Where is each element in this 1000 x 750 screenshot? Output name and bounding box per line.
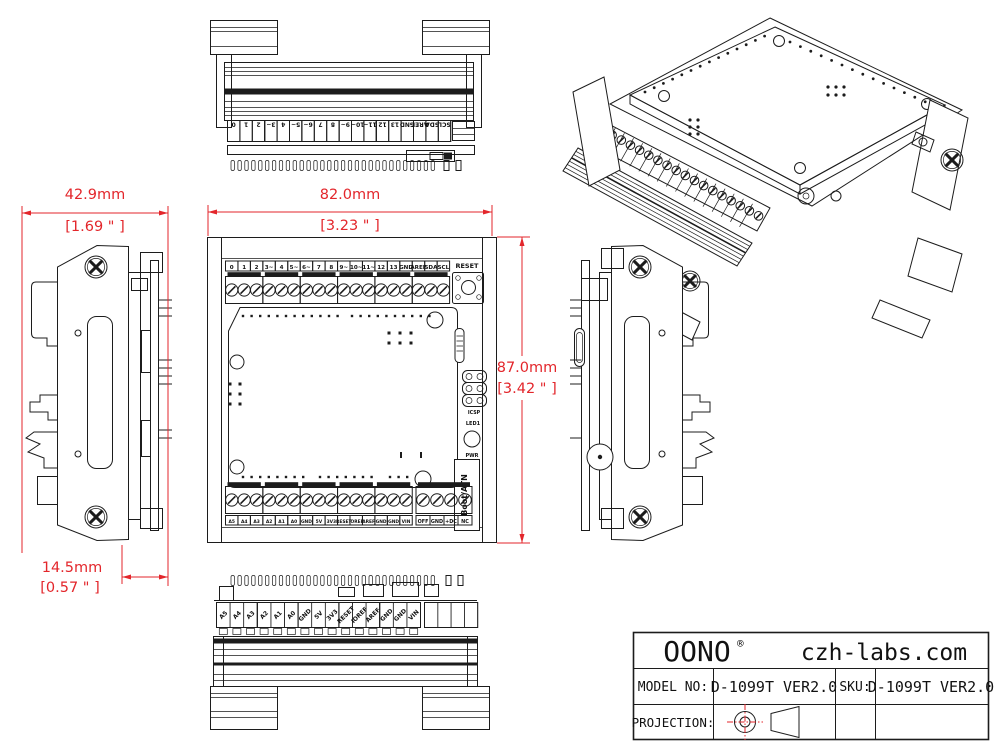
pad-dot [377, 315, 379, 317]
header-pin [300, 161, 303, 171]
terminal-label: A3 [245, 610, 256, 621]
terminal-label: 7 [317, 265, 321, 271]
terminal-label: A5 [218, 610, 229, 621]
terminal-label: A2 [266, 519, 272, 525]
din-hook-top [32, 282, 58, 346]
pad-dot [250, 476, 252, 478]
terminal-label: A0 [291, 519, 297, 525]
pad-dot [842, 93, 845, 96]
pad-dot [745, 43, 748, 46]
dimension-front-height: 87.0mm [3.42 " ] [497, 237, 558, 543]
pad-dot [345, 476, 347, 478]
pwr-led [464, 431, 480, 447]
bottom-right-plate [423, 687, 490, 730]
pad-dot [696, 125, 699, 128]
header-pin [266, 576, 269, 586]
screw-slot [390, 496, 397, 503]
terminal-label-cell [464, 603, 477, 628]
pad-dot [410, 332, 413, 335]
terminal-label: 5~ [290, 265, 299, 271]
header-pin [259, 161, 262, 171]
terminal-label: 11~ [362, 265, 375, 271]
din-hook-top [683, 282, 709, 346]
pad-dot [872, 77, 875, 80]
website: czh-labs.com [801, 640, 967, 666]
right-side-view [570, 246, 714, 541]
screw-slot [265, 496, 272, 503]
pad-dot [690, 69, 693, 72]
rail-dark-band [214, 639, 478, 644]
pad-dot [834, 93, 837, 96]
pad-dot [696, 132, 699, 135]
component-block [425, 585, 439, 597]
terminal-label: AREF [362, 519, 375, 525]
iso-led [831, 191, 841, 201]
header-pin [369, 161, 372, 171]
screw-slot [253, 496, 260, 503]
terminal-clamp-bar [302, 272, 335, 276]
drawing-canvas: 0123~45~6~789~10~11~1213GNDAREFSDASCL [0, 0, 1000, 750]
header-pin [404, 576, 407, 586]
pad-dot [411, 315, 413, 317]
header-pin [410, 576, 413, 586]
button-corner-screw [456, 295, 461, 300]
header-pin [266, 161, 269, 171]
front-bottom-terminal-row: A5A4A3A2A1A0GND5V3V3RESETIOREFAREFGNDGND… [226, 482, 473, 525]
screw-slot [315, 286, 322, 293]
pad-dot [754, 39, 757, 42]
pad-dot [399, 342, 402, 345]
header-pin [348, 576, 351, 586]
header-pin [383, 161, 386, 171]
button-corner-screw [456, 276, 461, 281]
terminal-clamp-bar [340, 482, 373, 486]
screw-slot [278, 286, 285, 293]
terminal-label: A4 [232, 610, 243, 621]
terminal-foot [383, 629, 391, 635]
pad-dot [688, 132, 691, 135]
pad-dot [336, 315, 338, 317]
pad-dot [362, 476, 364, 478]
pad-dot [268, 476, 270, 478]
screw-slot [377, 496, 384, 503]
rail-dark-band [225, 89, 474, 95]
pcb-mark [400, 452, 402, 458]
terminal-label: +DC [445, 519, 457, 525]
header-pin [279, 576, 282, 586]
pad-dot [851, 68, 854, 71]
dim-arrow [208, 210, 217, 215]
pad-dot [826, 93, 829, 96]
screw-slot [228, 496, 235, 503]
button-corner-screw [477, 295, 482, 300]
pwr-label: PWR [465, 453, 478, 459]
dim-arrow [483, 210, 492, 215]
pad-dot [913, 96, 916, 99]
wide-pin [456, 161, 461, 171]
pad-dot [351, 315, 353, 317]
dim-arrow [520, 237, 525, 246]
dim-inch: [3.42 " ] [497, 381, 557, 397]
dimension-front-width: 82.0mm [3.23 " ] [208, 187, 492, 236]
plate-lines [423, 28, 490, 47]
terminal-label: SCL [438, 121, 451, 128]
terminal-foot [410, 629, 418, 635]
header-pin [293, 161, 296, 171]
component-block [339, 588, 355, 597]
screw-slot [340, 496, 347, 503]
screw-slot [303, 286, 310, 293]
header-pin [328, 161, 331, 171]
terminal-foot [301, 629, 309, 635]
pad-dot [688, 125, 691, 128]
left-side-view [26, 246, 172, 541]
pad-dot [688, 118, 691, 121]
header-pins [570, 300, 582, 438]
component-block [142, 331, 151, 373]
header-pin [238, 161, 241, 171]
terminal-label: GND [431, 519, 443, 525]
terminal-label: 1 [244, 121, 248, 128]
header-pin [245, 576, 248, 586]
screw-slot [440, 286, 447, 293]
bottom-terminal-row: A5A4A3A2A1A0GND5V3V3RESETIOREFAREFGNDGND… [217, 603, 478, 635]
terminal-label: 5V [313, 610, 324, 621]
terminal-clamp-bar [228, 482, 261, 486]
screw-slot [228, 286, 235, 293]
pad-dot [328, 315, 330, 317]
screw-slot [253, 286, 260, 293]
header-pin [286, 161, 289, 171]
dim-arrow [159, 211, 168, 216]
icsp-pin [466, 374, 472, 380]
pad-dot [259, 476, 261, 478]
pad-dot [259, 315, 261, 317]
terminal-label: 7 [318, 121, 322, 128]
header-pin [252, 576, 255, 586]
pad-dot [239, 393, 242, 396]
header-pin [341, 161, 344, 171]
terminal-label: A0 [286, 610, 297, 621]
terminal-clamp-bar [377, 482, 410, 486]
pad-dot [388, 332, 391, 335]
din-spring-clip [683, 432, 715, 468]
pad-dot [319, 315, 321, 317]
dim-arrow [159, 575, 168, 580]
header-pin [231, 161, 234, 171]
terminal-label: GND [376, 519, 387, 525]
terminal-foot [396, 629, 404, 635]
pad-dot [708, 61, 711, 64]
header-pin [238, 576, 241, 586]
pcb-mark [420, 452, 422, 458]
front-top-terminal-row: 0123~45~6~789~10~11~1213GNDAREFSDASCL [226, 261, 450, 304]
terminal-label: 9~ [339, 265, 348, 271]
terminal-label: SCL [438, 265, 450, 271]
terminal-foot [342, 629, 350, 635]
pad-dot [903, 91, 906, 94]
screw-slot [433, 496, 441, 504]
header-pin [397, 576, 400, 586]
screw-slot [365, 286, 372, 293]
terminal-label-cell [451, 603, 464, 628]
plate-lines [211, 28, 278, 47]
pad-dot [311, 315, 313, 317]
header-pins [159, 300, 173, 438]
pad-dot [285, 315, 287, 317]
terminal-label: 1 [242, 265, 246, 271]
pad-dot [680, 73, 683, 76]
screw-slot [427, 286, 434, 293]
pad-dot [736, 48, 739, 51]
sku-value: D-1099T VER2.0 [868, 678, 994, 696]
dim-mm: 87.0mm [497, 360, 558, 376]
header-pin [293, 576, 296, 586]
drawing-sheet: 0123~45~6~789~10~11~1213GNDAREFSDASCL [0, 0, 1000, 750]
plate-lines [211, 694, 278, 718]
terminal-label: 13 [390, 265, 398, 271]
pad-dot [406, 476, 408, 478]
terminal-label: A5 [228, 519, 234, 525]
terminal-label: A4 [241, 519, 247, 525]
screw-slot [315, 496, 322, 503]
pad-dot [717, 56, 720, 59]
terminal-label: 2 [256, 121, 260, 128]
terminal-label: 3~ [266, 121, 275, 128]
power-jack-side [582, 279, 608, 301]
terminal-clamp-bar [265, 272, 298, 276]
header-pin [300, 576, 303, 586]
terminal-foot [247, 629, 255, 635]
din-hook-bottom [38, 477, 58, 505]
usb-connector [455, 329, 464, 363]
pad-dot [420, 315, 422, 317]
pad-dot [653, 86, 656, 89]
terminal-label: SDA [425, 121, 439, 128]
dim-mm: 42.9mm [65, 187, 126, 203]
screw-slot [447, 496, 455, 504]
dim-arrow [520, 534, 525, 543]
left-rail-channel [208, 238, 222, 543]
pad-dot [302, 315, 304, 317]
pad-dot [826, 85, 829, 88]
wide-pin [446, 576, 451, 586]
reset-label: RESET [455, 262, 479, 270]
connector-lines [453, 129, 475, 135]
pad-dot [285, 476, 287, 478]
component-block [364, 585, 384, 597]
pad-dot [644, 91, 647, 94]
terminal-label: 8 [331, 121, 335, 128]
pad-dot [336, 476, 338, 478]
reset-button-cap[interactable] [462, 281, 476, 295]
pad-dot [841, 64, 844, 67]
terminal-label: 10~ [350, 265, 363, 271]
dim-mm: 14.5mm [42, 560, 103, 576]
pad-dot [293, 476, 295, 478]
iso-clip-channel [908, 238, 962, 292]
sku-label: SKU: [839, 680, 870, 695]
terminal-label: VIN [407, 609, 420, 622]
terminal-clamp-bar [377, 272, 410, 276]
header-pin [259, 576, 262, 586]
pcb-edge [151, 261, 159, 531]
screw-slot [365, 496, 372, 503]
title-block: OONO ® czh-labs.com MODEL NO: D-1099T VE… [632, 633, 995, 741]
pad-dot [861, 73, 864, 76]
terminal-label: A2 [259, 610, 270, 621]
terminal-label: 0 [232, 121, 236, 128]
terminal-label: A1 [272, 610, 283, 621]
bottom-left-plate [211, 687, 278, 730]
screw-slot [419, 496, 427, 504]
header-pin [355, 576, 358, 586]
terminal-label: 2 [255, 265, 259, 271]
terminal-label: 3~ [265, 265, 274, 271]
header-pin [335, 576, 338, 586]
component-block [142, 421, 151, 457]
dim-inch: [3.23 " ] [320, 218, 380, 234]
terminal-clamp-bar [228, 272, 261, 276]
screw-slot [241, 286, 248, 293]
usb-connector-side [575, 329, 585, 367]
pad-dot [229, 383, 232, 386]
header-pin [272, 161, 275, 171]
header-pin [314, 576, 317, 586]
terminal-foot [274, 629, 282, 635]
icsp-pins [466, 374, 483, 404]
pad-dot [410, 342, 413, 345]
header-pin [335, 161, 338, 171]
top-right-plate [423, 21, 490, 55]
top-connector [453, 122, 475, 141]
pad-dot [276, 476, 278, 478]
icsp-pin [466, 386, 472, 392]
header-pin [348, 161, 351, 171]
projection-label: PROJECTION: [632, 715, 715, 730]
bracket-plate [58, 246, 129, 541]
pad-dot [327, 476, 329, 478]
din-tab-middle [30, 395, 58, 420]
terminal-label: GND [388, 519, 399, 525]
stack-bottom-flange [141, 509, 163, 529]
terminal-label: 9~ [341, 121, 350, 128]
screw-slot [278, 496, 285, 503]
terminal-label: 12 [378, 121, 386, 128]
pad-dot [242, 315, 244, 317]
rail-end-cap [468, 637, 478, 687]
terminal-clamp-bar [418, 482, 470, 486]
screw-slot [303, 496, 310, 503]
pad-dot [696, 118, 699, 121]
switch-body [430, 153, 443, 160]
terminal-label: 11~ [363, 121, 376, 128]
rail-body [214, 637, 478, 687]
brand-name: OONO [663, 635, 730, 668]
screw-slot [290, 286, 297, 293]
terminal-label: GND [297, 608, 313, 624]
screw-slot [265, 286, 272, 293]
pad-dot [834, 85, 837, 88]
header-pin [231, 576, 234, 586]
terminal-label: 6~ [302, 265, 311, 271]
pad-dot [359, 315, 361, 317]
icsp-label: ICSP [468, 410, 481, 416]
terminal-clamp-bar [265, 482, 298, 486]
top-left-plate [211, 21, 278, 55]
model-label: MODEL NO: [638, 680, 708, 695]
screw-slot [353, 286, 360, 293]
pad-dot [671, 78, 674, 81]
pad-dot [830, 59, 833, 62]
pad-dot [239, 383, 242, 386]
pad-dot [276, 315, 278, 317]
pad-dot [242, 476, 244, 478]
terminal-label-cell [425, 603, 438, 628]
top-view: 0123~45~6~789~10~11~1213GNDAREFSDASCL [211, 21, 490, 171]
header-pin [286, 576, 289, 586]
led1-label: LED1 [466, 421, 481, 427]
terminal-foot [219, 629, 227, 635]
pad-dot [385, 315, 387, 317]
switch-knob [444, 153, 452, 160]
header-pin [390, 161, 393, 171]
pad-dot [726, 52, 729, 55]
right-rail-channel [483, 238, 497, 543]
header-pin [328, 576, 331, 586]
iso-left-end-plate [573, 77, 620, 186]
registered-mark: ® [737, 637, 744, 650]
projection-symbol [727, 704, 799, 740]
pad-dot [842, 85, 845, 88]
pad-dot [789, 41, 792, 44]
terminal-label: 10~ [351, 121, 364, 128]
arduino-pcb [229, 308, 458, 488]
din-spring-clip [26, 432, 58, 468]
header-pin [321, 161, 324, 171]
header-pin [307, 576, 310, 586]
terminal-label: VIN [402, 519, 411, 525]
din-hook-bottom [683, 477, 703, 505]
terminal-foot [315, 629, 323, 635]
icsp-pin [466, 398, 472, 404]
pad-dot [402, 315, 404, 317]
stack-top-flange [141, 253, 163, 273]
header-pin [272, 576, 275, 586]
top-terminal-row: 0123~45~6~789~10~11~1213GNDAREFSDASCL [228, 121, 451, 142]
dim-inch: [1.69 " ] [65, 219, 125, 235]
header-pin [321, 576, 324, 586]
pad-dot [893, 87, 896, 90]
terminal-foot [260, 629, 268, 635]
pad-dot [229, 403, 232, 406]
terminal-label: A1 [278, 519, 284, 525]
pad-dot [388, 342, 391, 345]
screw-slot [415, 286, 422, 293]
header-pin [314, 161, 317, 171]
terminal-label: 12 [377, 265, 385, 271]
pad-dot [394, 315, 396, 317]
pad-dot [882, 82, 885, 85]
front-view: 0123~45~6~789~10~11~1213GNDAREFSDASCL RE… [208, 238, 497, 543]
header-pin [245, 161, 248, 171]
screw-slot [241, 496, 248, 503]
screw-slot [353, 496, 360, 503]
bracket-plate [612, 246, 683, 541]
dimension-side-depth: 14.5mm [0.57 " ] [40, 545, 168, 596]
wide-pin [458, 576, 463, 586]
terminal-label: 4 [281, 121, 285, 128]
